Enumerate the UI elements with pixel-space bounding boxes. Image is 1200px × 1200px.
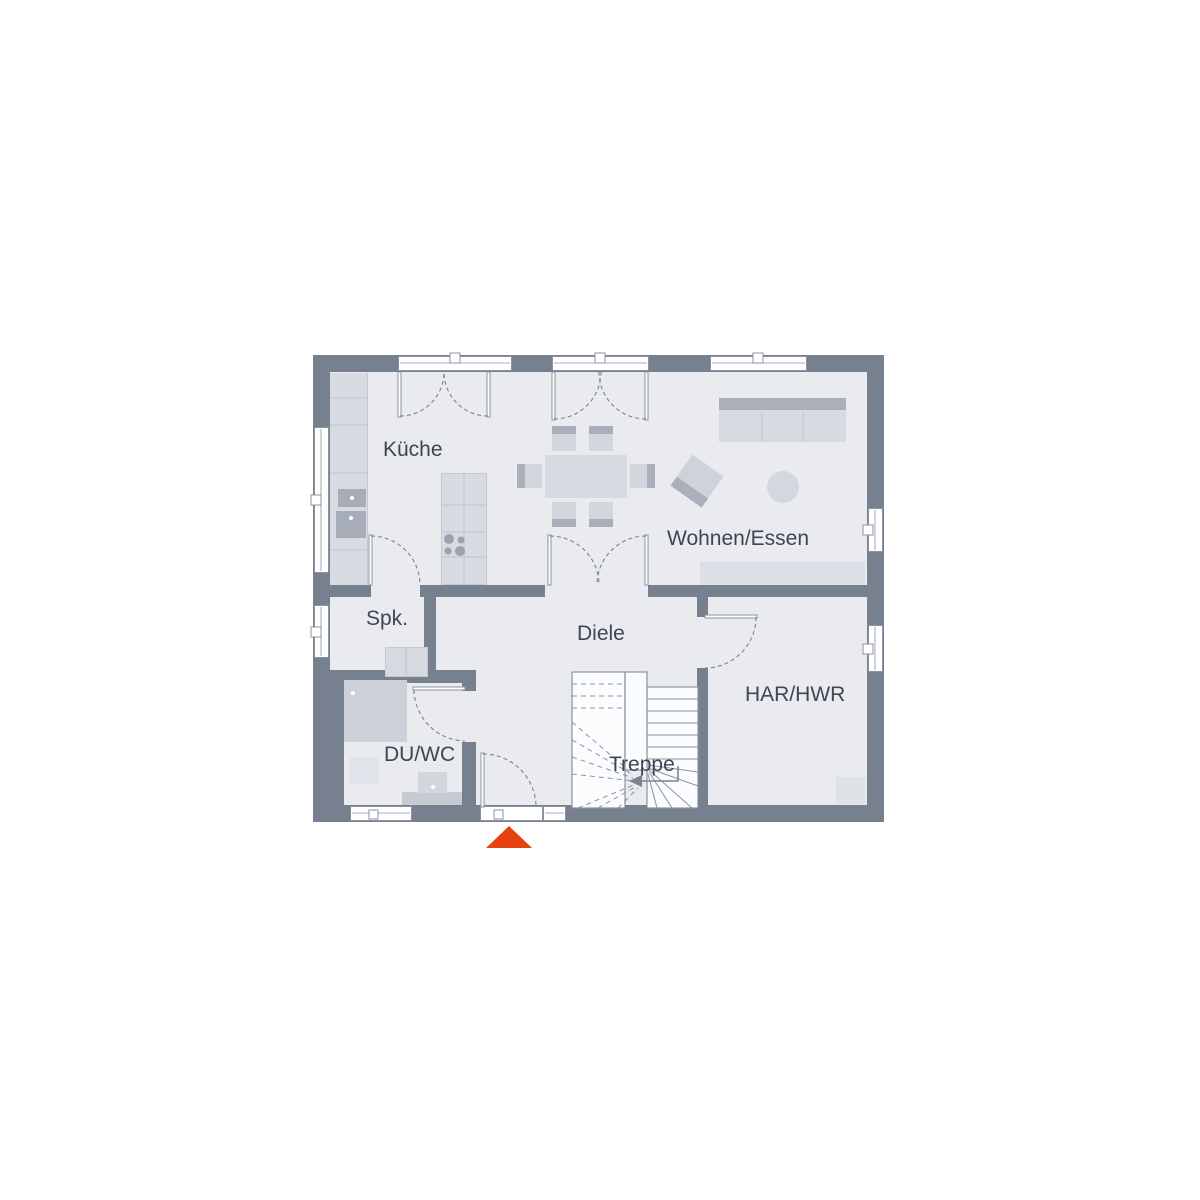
room-label-duwc: DU/WC [384,743,455,767]
room-label-wohnen-essen: Wohnen/Essen [667,527,809,551]
room-label-diele: Diele [577,622,625,646]
hall-double-door-leaf [548,535,551,585]
hall-double-door-leaf [645,535,648,585]
room-label-treppe: Treppe [609,753,675,777]
room-label-har-hwr: HAR/HWR [745,683,845,707]
french-door-leaf [487,372,490,417]
duwc-door-leaf [413,687,465,690]
staircase [572,672,698,808]
room-label-spk: Spk. [366,607,408,631]
floor-plan: Küche Wohnen/Essen Spk. Diele DU/WC HAR/… [0,0,1200,1200]
har-door-leaf [705,615,757,618]
french-door-leaf [398,372,401,417]
entrance-door-leaf [481,753,484,807]
pantry-door-leaf [369,535,372,585]
cooktop-burners-icon [444,534,465,556]
french-door-leaf [645,372,648,420]
french-door-leaf [552,372,555,420]
entrance-marker-icon [486,826,532,848]
plan-linework [0,0,1200,1200]
room-label-kueche: Küche [383,438,443,462]
